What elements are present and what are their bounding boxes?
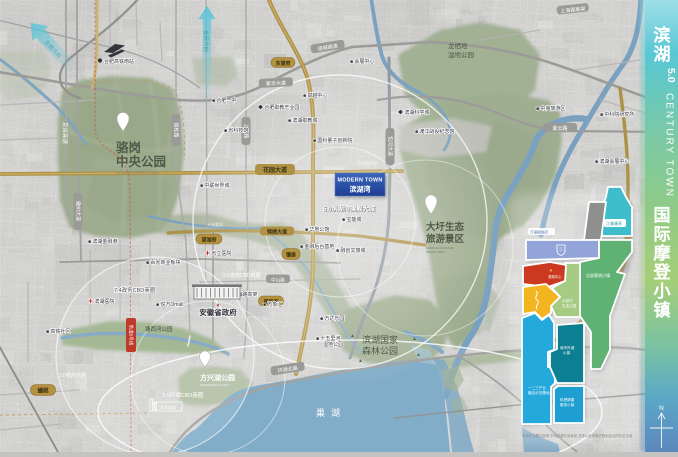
svg-text:◆ 合肥职教产业园: ◆ 合肥职教产业园 [258, 104, 299, 111]
svg-text:国: 国 [654, 206, 671, 225]
svg-text:包河大道: 包河大道 [387, 136, 394, 156]
svg-text:■ 滨湖金融港: ■ 滨湖金融港 [88, 238, 117, 245]
svg-text:花园大道: 花园大道 [263, 166, 287, 174]
svg-text:▲: ▲ [350, 333, 355, 339]
svg-text:3.5省府CBD商圈: 3.5省府CBD商圈 [223, 272, 261, 279]
svg-text:■ 渡江战役纪念馆: ■ 渡江战役纪念馆 [415, 128, 454, 135]
svg-text:■ 中联世界城: ■ 中联世界城 [200, 182, 229, 189]
svg-text:■ 滨湖会展中心: ■ 滨湖会展中心 [595, 158, 629, 165]
svg-text:安徽省政府: 安徽省政府 [199, 307, 237, 317]
svg-text:轨道5号线: 轨道5号线 [128, 325, 135, 346]
svg-text:十五里河: 十五里河 [207, 221, 223, 227]
svg-text:京台高速: 京台高速 [61, 122, 69, 145]
svg-text:MODERN TOWN: MODERN TOWN [337, 178, 382, 184]
svg-text:服务小镇: 服务小镇 [560, 402, 575, 407]
svg-text:滨湖中心: 滨湖中心 [548, 274, 562, 279]
svg-text:森林公园: 森林公园 [362, 345, 398, 356]
svg-text:N: N [659, 405, 664, 412]
svg-text:✚ 省立医院: ✚ 省立医院 [205, 250, 231, 257]
svg-text:骆岗: 骆岗 [116, 140, 141, 155]
svg-text:■ 宝能城: ■ 宝能城 [342, 216, 361, 223]
svg-text:◆ 滨湖科学城: ◆ 滨湖科学城 [398, 109, 429, 116]
svg-text:✚ 滨湖医院: ✚ 滨湖医院 [88, 298, 114, 305]
svg-text:方兴湖公园: 方兴湖公园 [200, 373, 235, 382]
svg-text:■ 滨湖职教城: ■ 滨湖职教城 [288, 117, 317, 124]
svg-text:繁华大道: 繁华大道 [266, 79, 286, 87]
svg-text:大圩生态: 大圩生态 [426, 221, 465, 233]
svg-text:■ 金融后台基地: ■ 金融后台基地 [300, 243, 334, 250]
svg-text:■ 悦方Omall: ■ 悦方Omall [156, 301, 183, 308]
svg-text:摩: 摩 [654, 244, 671, 263]
svg-text:✷: ✷ [549, 268, 553, 273]
svg-text:滨湖观澜: 滨湖观澜 [159, 404, 176, 411]
svg-text:滨湖国家: 滨湖国家 [362, 334, 398, 345]
svg-text:2.0省府商圈: 2.0省府商圈 [59, 372, 86, 379]
svg-text:宿松路: 宿松路 [173, 122, 180, 137]
svg-text:一二三产业: 一二三产业 [528, 385, 546, 390]
svg-text:湿地公园: 湿地公园 [323, 341, 343, 348]
svg-text:总部营销小镇: 总部营销小镇 [586, 272, 610, 278]
svg-text:■ 万象汇: ■ 万象汇 [263, 301, 282, 308]
svg-text:锦绣大道: 锦绣大道 [267, 229, 287, 236]
svg-text:蟠桃: 蟠桃 [37, 387, 49, 395]
svg-text:7.4政务CBD商圈: 7.4政务CBD商圈 [114, 286, 156, 294]
svg-text:东望府: 东望府 [275, 60, 290, 67]
svg-text:▲: ▲ [358, 358, 363, 364]
svg-text:■ 中庙旅游区: ■ 中庙旅游区 [536, 105, 565, 112]
svg-text:中央公园: 中央公园 [116, 154, 166, 169]
svg-text:■ 十五里河: ■ 十五里河 [316, 335, 340, 342]
svg-text:望湖府: 望湖府 [201, 237, 216, 244]
svg-text:5.0滨湖湾旗舰大城: 5.0滨湖湾旗舰大城 [323, 205, 376, 213]
svg-text:本资料为要约邀请 不构成要约或承诺 具体以政府最终规划及合同: 本资料为要约邀请 不构成要约或承诺 具体以政府最终规划及合同约定为准 [522, 433, 633, 438]
svg-text:江森康养: 江森康养 [606, 220, 622, 226]
svg-text:小: 小 [654, 282, 671, 301]
svg-text:5.0: 5.0 [665, 68, 677, 83]
svg-text:SCENIC AREA: SCENIC AREA [426, 250, 445, 254]
svg-text:滨湖湾: 滨湖湾 [350, 185, 371, 194]
svg-text:3.0环湖CBD商圈: 3.0环湖CBD商圈 [162, 391, 204, 399]
svg-text:际: 际 [654, 225, 671, 244]
svg-text:FANGXINGHU PARK: FANGXINGHU PARK [200, 383, 229, 387]
svg-text:▲: ▲ [416, 352, 421, 358]
svg-text:巢湖: 巢湖 [316, 407, 346, 418]
svg-text:CENTURY TOWN: CENTURY TOWN [664, 93, 675, 198]
svg-text:■ 卓越中心: ■ 卓越中心 [303, 92, 327, 99]
svg-text:▲: ▲ [412, 336, 417, 342]
svg-text:■ 百大商业板块: ■ 百大商业板块 [146, 259, 180, 266]
svg-text:■ 万达乐园: ■ 万达乐园 [320, 315, 344, 322]
svg-text:LUOGANG CENTRAL PARK: LUOGANG CENTRAL PARK [116, 171, 160, 175]
svg-text:滨: 滨 [654, 26, 671, 45]
svg-text:小镇: 小镇 [563, 350, 571, 355]
svg-text:合肥高铁南站: 合肥高铁南站 [104, 58, 134, 65]
svg-text:■ 华地公馆: ■ 华地公馆 [305, 226, 329, 233]
svg-text:省府方向: 省府方向 [202, 30, 210, 52]
svg-text:■ 国科量子创新院: ■ 国科量子创新院 [313, 137, 352, 144]
svg-text:■ 会展中心: ■ 会展中心 [350, 58, 374, 65]
svg-text:■ 高铁社区: ■ 高铁社区 [46, 328, 70, 335]
svg-text:城市外滩: 城市外滩 [560, 345, 575, 350]
svg-text:旅游景区: 旅游景区 [426, 233, 465, 245]
svg-text:中山路: 中山路 [271, 277, 285, 284]
svg-text:登: 登 [654, 263, 671, 282]
svg-text:融合示范基地: 融合示范基地 [528, 390, 550, 395]
svg-text:湿地公园: 湿地公园 [448, 50, 474, 59]
svg-text:科恩健康: 科恩健康 [560, 397, 575, 402]
svg-text:镶泰: 镶泰 [286, 252, 297, 259]
svg-text:紫云路: 紫云路 [552, 125, 567, 132]
svg-text:生态公园: 生态公园 [562, 303, 577, 308]
svg-text:湖: 湖 [654, 45, 671, 64]
svg-text:徽州大道: 徽州大道 [75, 201, 82, 221]
svg-text:塘西河公园: 塘西河公园 [145, 325, 173, 333]
svg-text:龙栖地: 龙栖地 [448, 41, 468, 50]
svg-text:■ 融创文旅城: ■ 融创文旅城 [336, 247, 365, 254]
svg-text:大张圩: 大张圩 [562, 298, 573, 303]
svg-text:■ 省科技馆: ■ 省科技馆 [224, 127, 248, 134]
svg-text:万丽熙悦府: 万丽熙悦府 [530, 230, 548, 235]
svg-text:■ 合肥一中: ■ 合肥一中 [212, 97, 236, 104]
svg-text:镇: 镇 [654, 301, 671, 320]
svg-text:■ 中科院研究所: ■ 中科院研究所 [600, 111, 634, 118]
